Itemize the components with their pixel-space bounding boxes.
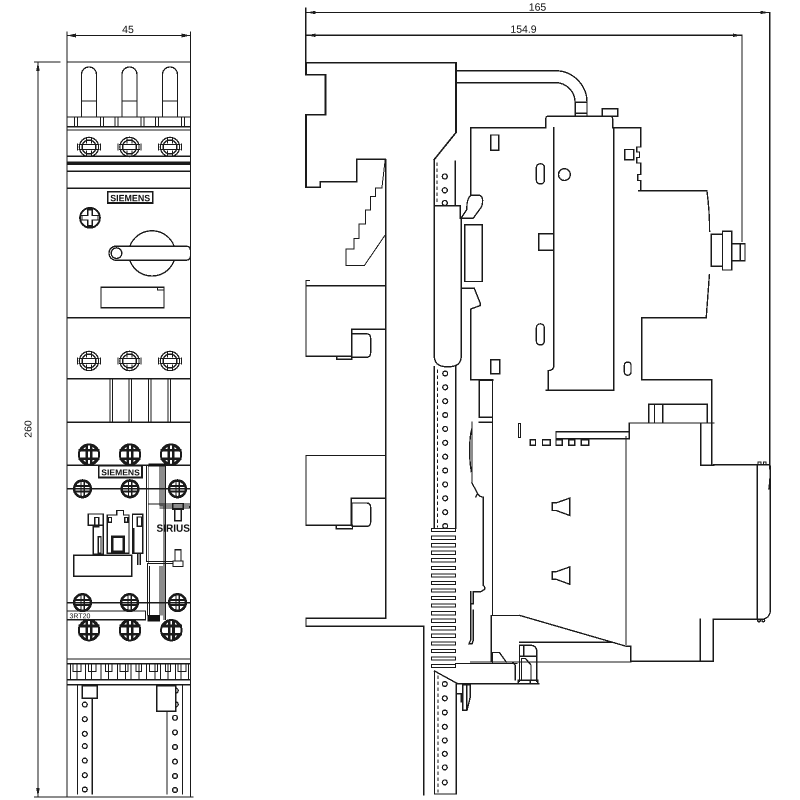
svg-text:SIEMENS: SIEMENS	[101, 467, 140, 477]
svg-text:SIRIUS: SIRIUS	[156, 523, 190, 535]
svg-text:165: 165	[529, 2, 547, 14]
svg-text:154.9: 154.9	[510, 24, 536, 36]
svg-text:45: 45	[122, 24, 134, 36]
svg-text:SIEMENS: SIEMENS	[110, 193, 150, 203]
svg-text:260: 260	[23, 420, 35, 438]
